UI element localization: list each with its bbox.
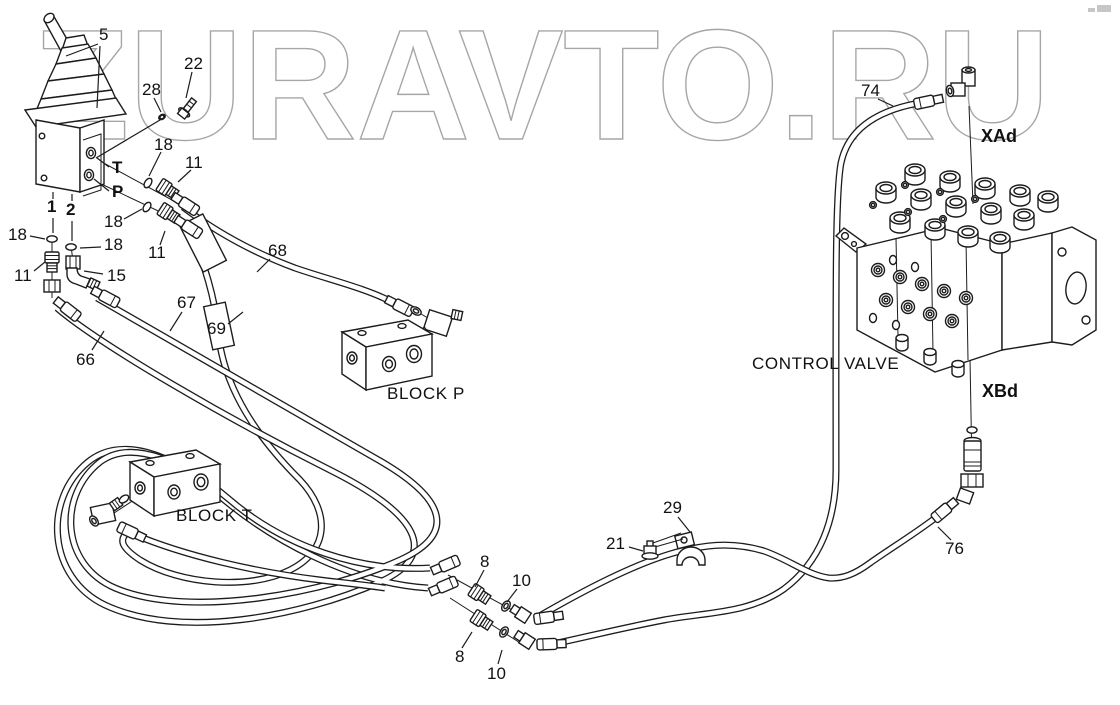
callout-5: 5 bbox=[99, 25, 108, 45]
hose-76 bbox=[536, 519, 934, 618]
control-valve-drawing bbox=[836, 164, 1096, 377]
watermark: ZURAVTO.RU bbox=[33, 0, 1050, 173]
port-label-p: P bbox=[112, 182, 123, 202]
callout-18-port2: 18 bbox=[104, 235, 123, 255]
callout-76: 76 bbox=[945, 539, 964, 559]
label-block-t: BLOCK T bbox=[176, 506, 253, 526]
callout-18-t: 18 bbox=[154, 135, 173, 155]
nut-port1 bbox=[44, 280, 60, 292]
callout-29: 29 bbox=[663, 498, 682, 518]
callout-28: 28 bbox=[142, 80, 161, 100]
callout-11-p: 11 bbox=[148, 243, 166, 263]
callout-11-port1: 11 bbox=[14, 266, 32, 286]
valve-port-label-xbd: XBd bbox=[982, 381, 1018, 401]
bottom-fitting-rows bbox=[428, 555, 566, 650]
callout-22: 22 bbox=[184, 54, 203, 74]
callout-8-upper: 8 bbox=[480, 552, 489, 572]
hose-69-to-block-t bbox=[123, 226, 322, 582]
callout-10-upper: 10 bbox=[512, 571, 531, 591]
callout-69: 69 bbox=[207, 319, 226, 339]
hose-74 bbox=[548, 104, 914, 645]
callout-21: 21 bbox=[606, 534, 625, 554]
port-label-2: 2 bbox=[66, 200, 75, 220]
callout-18-p: 18 bbox=[104, 212, 123, 232]
callout-10-lower: 10 bbox=[487, 664, 506, 684]
valve-port-label-xad: XAd bbox=[981, 126, 1017, 146]
callout-8-lower: 8 bbox=[455, 647, 464, 667]
xbd-fitting-chain bbox=[930, 427, 983, 524]
callout-68: 68 bbox=[268, 241, 287, 261]
parts-diagram-page: ZURAVTO.RU bbox=[0, 0, 1120, 705]
callout-74: 74 bbox=[861, 81, 880, 101]
label-control-valve: CONTROL VALVE bbox=[752, 354, 899, 374]
callout-67: 67 bbox=[177, 293, 196, 313]
port-label-t: T bbox=[112, 158, 122, 178]
callout-15: 15 bbox=[107, 266, 126, 286]
callout-18-port1: 18 bbox=[8, 225, 27, 245]
callout-11-t: 11 bbox=[185, 153, 203, 173]
diagram-line-art: ZURAVTO.RU bbox=[0, 0, 1120, 705]
label-block-p: BLOCK P bbox=[387, 384, 465, 404]
block-p-drawing bbox=[342, 320, 432, 390]
corner-mark-icon bbox=[1088, 5, 1111, 12]
port-label-1: 1 bbox=[47, 197, 56, 217]
callout-66: 66 bbox=[76, 350, 95, 370]
